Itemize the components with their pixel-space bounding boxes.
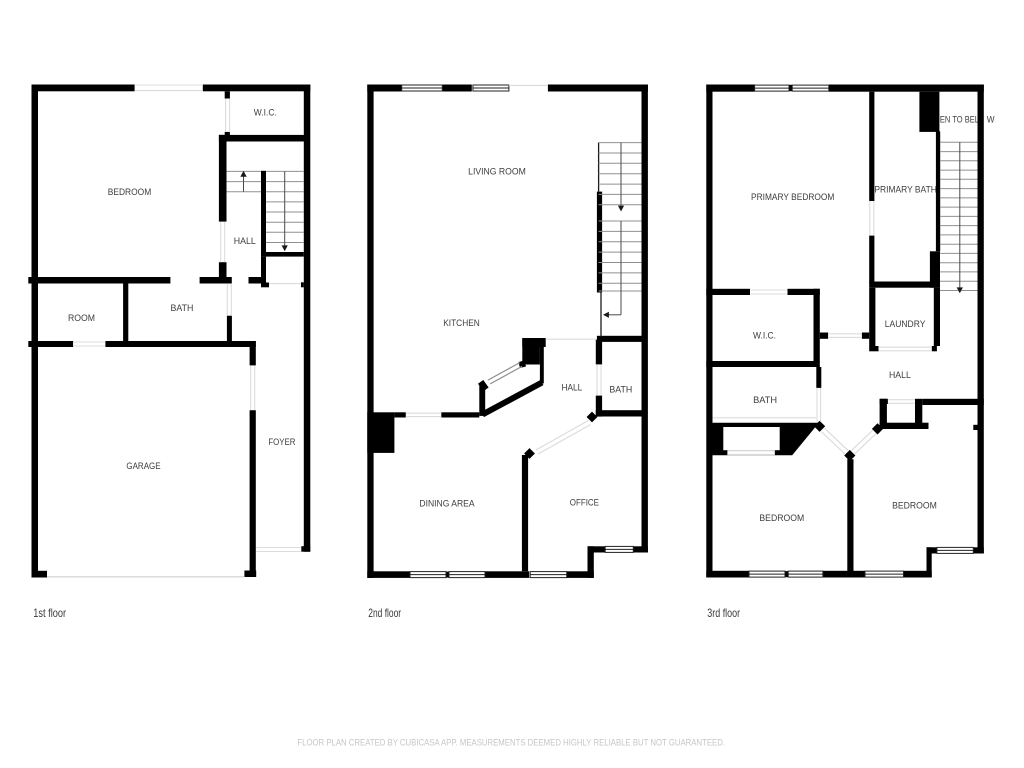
svg-text:KITCHEN: KITCHEN [443,318,480,329]
svg-text:PRIMARY BEDROOM: PRIMARY BEDROOM [751,192,834,203]
svg-text:1st floor: 1st floor [33,606,66,620]
svg-text:LIVING ROOM: LIVING ROOM [468,167,526,178]
svg-text:BEDROOM: BEDROOM [759,513,804,524]
svg-text:W.I.C.: W.I.C. [254,108,277,119]
svg-text:BEDROOM: BEDROOM [892,501,937,512]
svg-text:HALL: HALL [562,382,583,393]
svg-text:FLOOR PLAN CREATED BY CUBICASA: FLOOR PLAN CREATED BY CUBICASA APP. MEAS… [297,738,725,748]
svg-text:W.I.C.: W.I.C. [753,331,776,342]
svg-text:2nd floor: 2nd floor [368,606,401,620]
svg-text:EN TO BEL: EN TO BEL [940,115,980,126]
svg-text:BEDROOM: BEDROOM [108,187,152,198]
svg-text:HALL: HALL [889,370,911,381]
svg-text:HALL: HALL [234,236,257,247]
svg-text:ROOM: ROOM [68,313,95,324]
svg-text:BATH: BATH [609,384,632,395]
svg-text:3rd floor: 3rd floor [707,606,740,620]
svg-text:DINING AREA: DINING AREA [419,499,475,510]
svg-text:LAUNDRY: LAUNDRY [885,319,926,330]
svg-text:GARAGE: GARAGE [126,461,160,472]
svg-text:FOYER: FOYER [268,437,295,448]
svg-text:W: W [987,115,996,126]
svg-text:PRIMARY BATH: PRIMARY BATH [874,185,937,196]
svg-text:BATH: BATH [170,303,193,314]
svg-text:OFFICE: OFFICE [570,498,599,509]
svg-text:BATH: BATH [753,395,777,406]
